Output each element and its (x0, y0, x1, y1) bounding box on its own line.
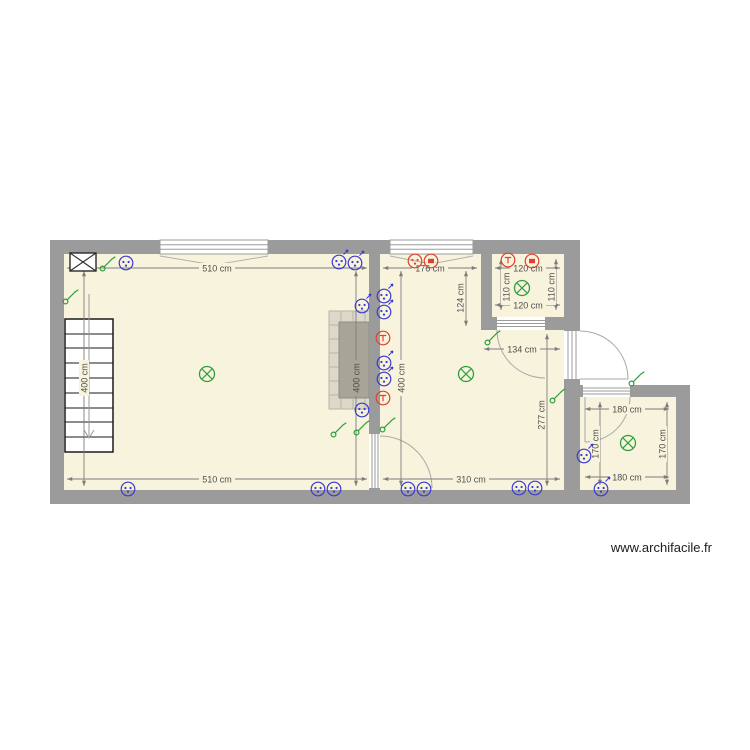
svg-text:176 cm: 176 cm (415, 264, 445, 274)
wall-left[interactable] (50, 240, 64, 504)
dimension-label: 134 cm (504, 344, 540, 355)
svg-text:400 cm: 400 cm (352, 363, 362, 393)
dimension-label: 170 cm (657, 426, 668, 462)
svg-text:510 cm: 510 cm (202, 264, 232, 274)
svg-text:400 cm: 400 cm (397, 363, 407, 393)
dimension-label: 400 cm (351, 360, 362, 396)
svg-text:120 cm: 120 cm (513, 301, 543, 311)
wall-right-upper[interactable] (564, 254, 580, 331)
floor-plan-canvas: 510 cm 510 cm 400 cm 400 cm 176 cm 400 c… (0, 0, 750, 750)
svg-text:180 cm: 180 cm (612, 405, 642, 415)
floor-room2[interactable] (380, 254, 564, 490)
svg-text:400 cm: 400 cm (80, 363, 90, 393)
svg-text:110 cm: 110 cm (547, 273, 557, 302)
dimension-label: 400 cm (79, 360, 90, 396)
svg-text:170 cm: 170 cm (658, 429, 668, 459)
dimension-label: 510 cm (199, 474, 235, 485)
dimension-label: 110 cm (501, 269, 512, 305)
dimension-label: 400 cm (396, 360, 407, 396)
wall-bottom[interactable] (50, 490, 690, 504)
svg-text:510 cm: 510 cm (202, 475, 232, 485)
svg-text:124 cm: 124 cm (456, 283, 466, 313)
svg-text:110 cm: 110 cm (502, 273, 512, 302)
dimension-label: 510 cm (199, 263, 235, 274)
wall-top[interactable] (50, 240, 580, 254)
svg-text:134 cm: 134 cm (507, 345, 537, 355)
svg-text:310 cm: 310 cm (456, 475, 486, 485)
door-entrance[interactable] (564, 331, 628, 379)
door-swing-arc (580, 331, 628, 379)
dimension-label: 180 cm (609, 404, 645, 415)
dimension-label: 310 cm (453, 474, 489, 485)
dimension-label: 124 cm (455, 280, 466, 316)
light-switch-icon[interactable] (629, 372, 644, 386)
dimension-label: 120 cm (510, 300, 546, 311)
dimension-label: 110 cm (546, 269, 557, 305)
dimension-label: 277 cm (536, 397, 547, 433)
dimension-label: 180 cm (609, 472, 645, 483)
svg-text:277 cm: 277 cm (537, 400, 547, 430)
wall-right-room-right[interactable] (676, 385, 690, 504)
watermark: www.archifacile.fr (610, 540, 713, 555)
vmc-vent-icon[interactable] (70, 253, 96, 271)
dimension-label: 120 cm (510, 263, 546, 274)
svg-text:180 cm: 180 cm (612, 473, 642, 483)
svg-text:120 cm: 120 cm (513, 264, 543, 274)
